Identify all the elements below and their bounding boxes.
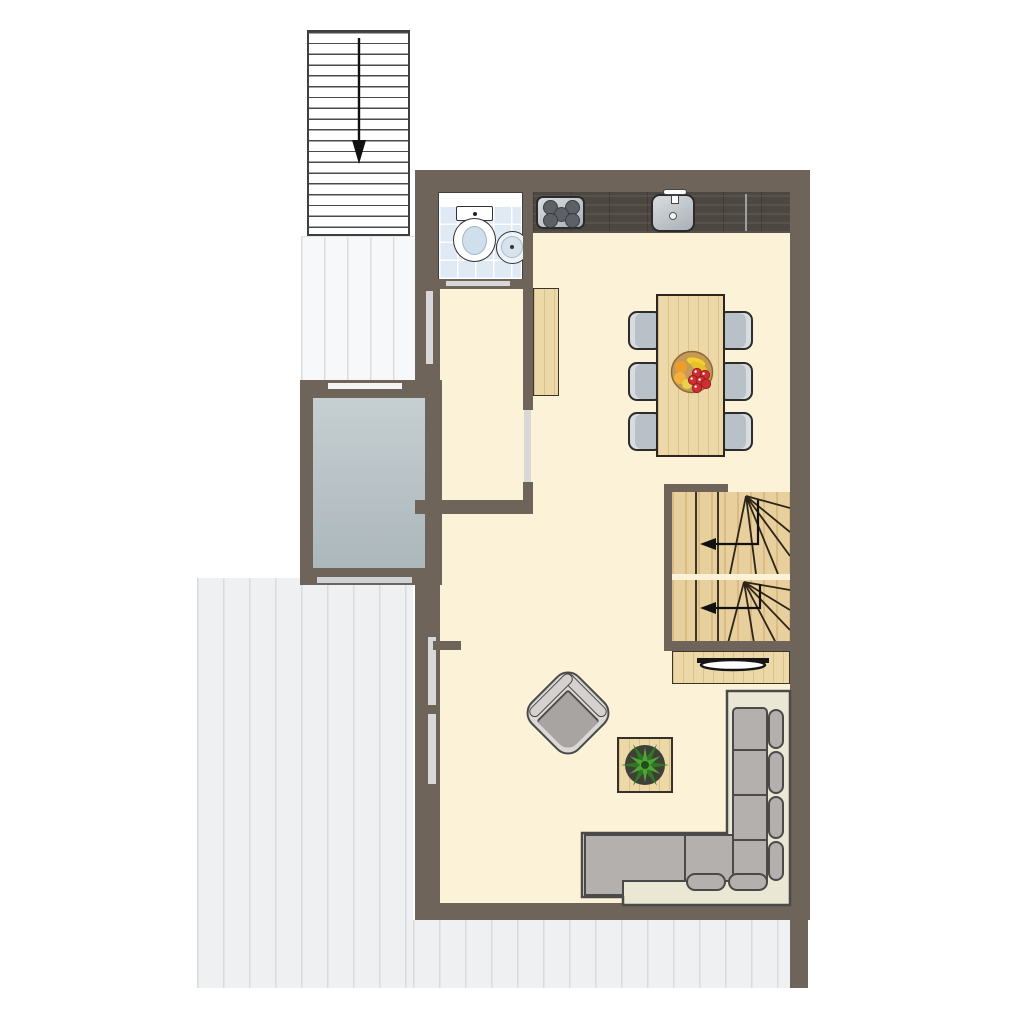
burner-icon [565,213,580,228]
terrace-deck [197,578,413,988]
open-door-leaf [433,641,461,650]
burner-icon [543,213,558,228]
bathroom-shelf [439,193,521,206]
dining-chair [723,311,753,350]
exterior-staircase [307,30,410,236]
threshold-bottom [317,577,412,583]
flush-button [473,212,477,216]
toilet-bowl [453,218,496,262]
corner-sofa [576,688,792,907]
terrace-deck-bottom [413,920,790,988]
stair-treads-upper [672,492,790,574]
stair-down-arrow-icon [309,32,408,234]
tv-sideboard [672,651,790,684]
plant-icon [619,739,671,791]
drain-icon [510,245,514,249]
planter-frame [300,380,442,585]
terrace-door-panel [428,714,436,784]
kitchen-tap-spout [671,195,679,204]
worktop-seam [745,194,747,231]
stairs-lower-flight [672,580,790,643]
floor-plan-canvas [0,0,1024,1024]
entrance-door [426,291,433,364]
dining-chair [628,311,658,350]
toilet-bowl-inner [462,226,487,255]
stair-wall-top [664,484,728,492]
dining-chair [628,362,658,401]
bathroom-door [446,281,510,286]
stair-treads-lower [672,580,790,643]
stair-wall-left [664,484,672,651]
dining-chair [723,362,753,401]
landing-deck [301,236,415,380]
hob [536,196,585,229]
hall-bottom-wall [415,500,533,514]
threshold-top [328,383,402,389]
dining-chair [723,412,753,451]
hall-cabinet [533,288,559,396]
dining-chair [628,412,658,451]
wall-extension [790,903,808,988]
hall-door [524,410,531,482]
hall-wall-upper [523,192,533,410]
drain-icon [669,212,677,220]
stairs-upper-flight [672,492,790,574]
bathroom [438,192,523,281]
fruit-bowl-icon [670,350,714,394]
kitchen-worktop [533,192,790,233]
coffee-table [617,737,673,793]
tv-icon [673,652,788,682]
stair-wall-bottom [664,641,790,651]
planter-fill [313,398,425,568]
